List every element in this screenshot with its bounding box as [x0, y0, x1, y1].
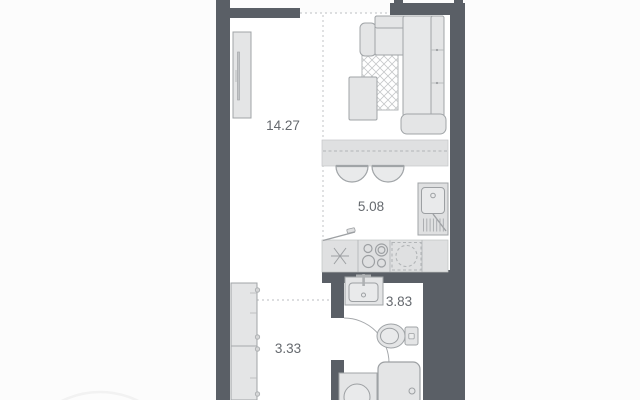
wardrobe: [231, 283, 260, 400]
shower: [378, 362, 420, 400]
sofa-armrest-left: [360, 23, 376, 56]
wall-top-tab-2: [454, 0, 463, 4]
sink-drainer: [424, 219, 444, 232]
room-label-hallway: 3.33: [275, 341, 301, 356]
kitchen-sink: [418, 183, 448, 235]
bar-counter: [322, 140, 448, 166]
washing-machine: [339, 373, 377, 400]
tv-screen: [238, 52, 240, 100]
floor-plan[interactable]: 14.27 5.08 3.83 3.33: [0, 0, 640, 400]
room-label-kitchen: 5.08: [358, 199, 384, 214]
room-label-bathroom: 3.83: [386, 294, 412, 309]
wall-left: [216, 0, 230, 400]
sofa-button-2: [436, 82, 438, 84]
wall-top-stub: [229, 8, 300, 18]
sofa-main-back: [431, 16, 444, 116]
tv-stand: [235, 70, 237, 82]
wall-shaft-right: [423, 270, 465, 400]
tv-unit: [233, 32, 251, 118]
toilet: [377, 324, 418, 348]
wall-kitchen-bathroom: [322, 272, 465, 283]
washbasin-tap-stem: [362, 274, 365, 286]
wall-right: [450, 14, 465, 272]
sink-basin: [422, 188, 445, 214]
wall-top-tab-1: [394, 0, 403, 4]
room-label-living-room: 14.27: [266, 118, 300, 133]
wall-bathroom-left-upper: [331, 283, 344, 318]
washbasin: [345, 274, 383, 305]
sofa-button-1: [436, 49, 438, 51]
wall-top-right: [390, 3, 465, 15]
sofa-armrest-bottom: [401, 114, 446, 134]
coffee-table: [349, 77, 377, 120]
